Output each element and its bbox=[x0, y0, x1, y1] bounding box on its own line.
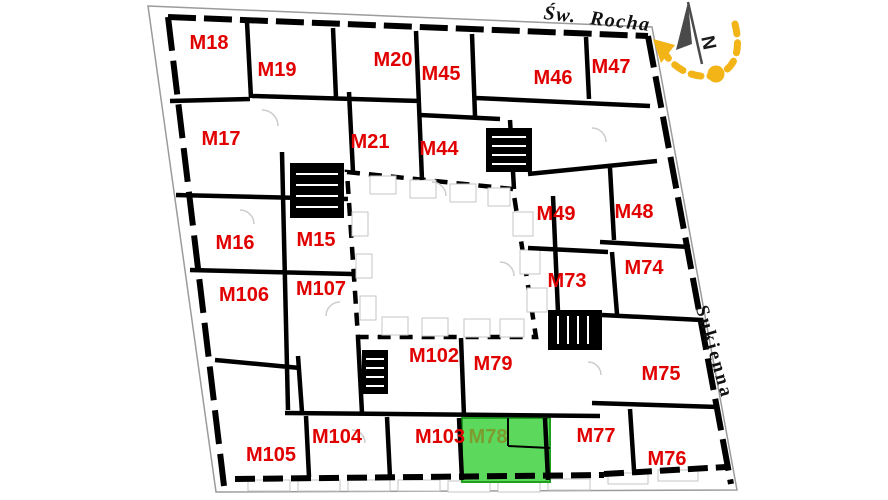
unit-label-m47[interactable]: M47 bbox=[592, 57, 631, 77]
unit-label-m16[interactable]: M16 bbox=[216, 233, 255, 253]
unit-label-m49[interactable]: M49 bbox=[537, 204, 576, 224]
unit-label-m102[interactable]: M102 bbox=[409, 346, 459, 366]
unit-label-m21[interactable]: M21 bbox=[351, 132, 390, 152]
unit-label-m107[interactable]: M107 bbox=[296, 279, 346, 299]
unit-label-m74[interactable]: M74 bbox=[625, 258, 664, 278]
unit-label-m104[interactable]: M104 bbox=[312, 427, 362, 447]
unit-label-m75[interactable]: M75 bbox=[642, 364, 681, 384]
unit-label-m78[interactable]: M78 bbox=[469, 427, 508, 447]
compass: N bbox=[653, 2, 738, 83]
unit-label-m48[interactable]: M48 bbox=[615, 202, 654, 222]
unit-label-m15[interactable]: M15 bbox=[297, 230, 336, 250]
rotation-arc-dot bbox=[708, 66, 725, 83]
unit-label-m105[interactable]: M105 bbox=[246, 445, 296, 465]
north-label: N bbox=[696, 34, 719, 52]
unit-label-m18[interactable]: M18 bbox=[190, 33, 229, 53]
floor-plan-page: N M18M19M20M45M46M47M17M21M44M49M48M16M1… bbox=[0, 0, 888, 500]
unit-label-m103[interactable]: M103 bbox=[415, 427, 465, 447]
unit-label-m106[interactable]: M106 bbox=[219, 285, 269, 305]
unit-label-m46[interactable]: M46 bbox=[534, 68, 573, 88]
unit-label-m45[interactable]: M45 bbox=[422, 64, 461, 84]
unit-label-m73[interactable]: M73 bbox=[548, 271, 587, 291]
unit-label-m17[interactable]: M17 bbox=[202, 129, 241, 149]
unit-label-m19[interactable]: M19 bbox=[258, 60, 297, 80]
unit-label-m44[interactable]: M44 bbox=[420, 139, 459, 159]
unit-label-m79[interactable]: M79 bbox=[474, 354, 513, 374]
unit-label-m77[interactable]: M77 bbox=[577, 426, 616, 446]
unit-label-m76[interactable]: M76 bbox=[648, 449, 687, 469]
unit-label-m20[interactable]: M20 bbox=[374, 50, 413, 70]
